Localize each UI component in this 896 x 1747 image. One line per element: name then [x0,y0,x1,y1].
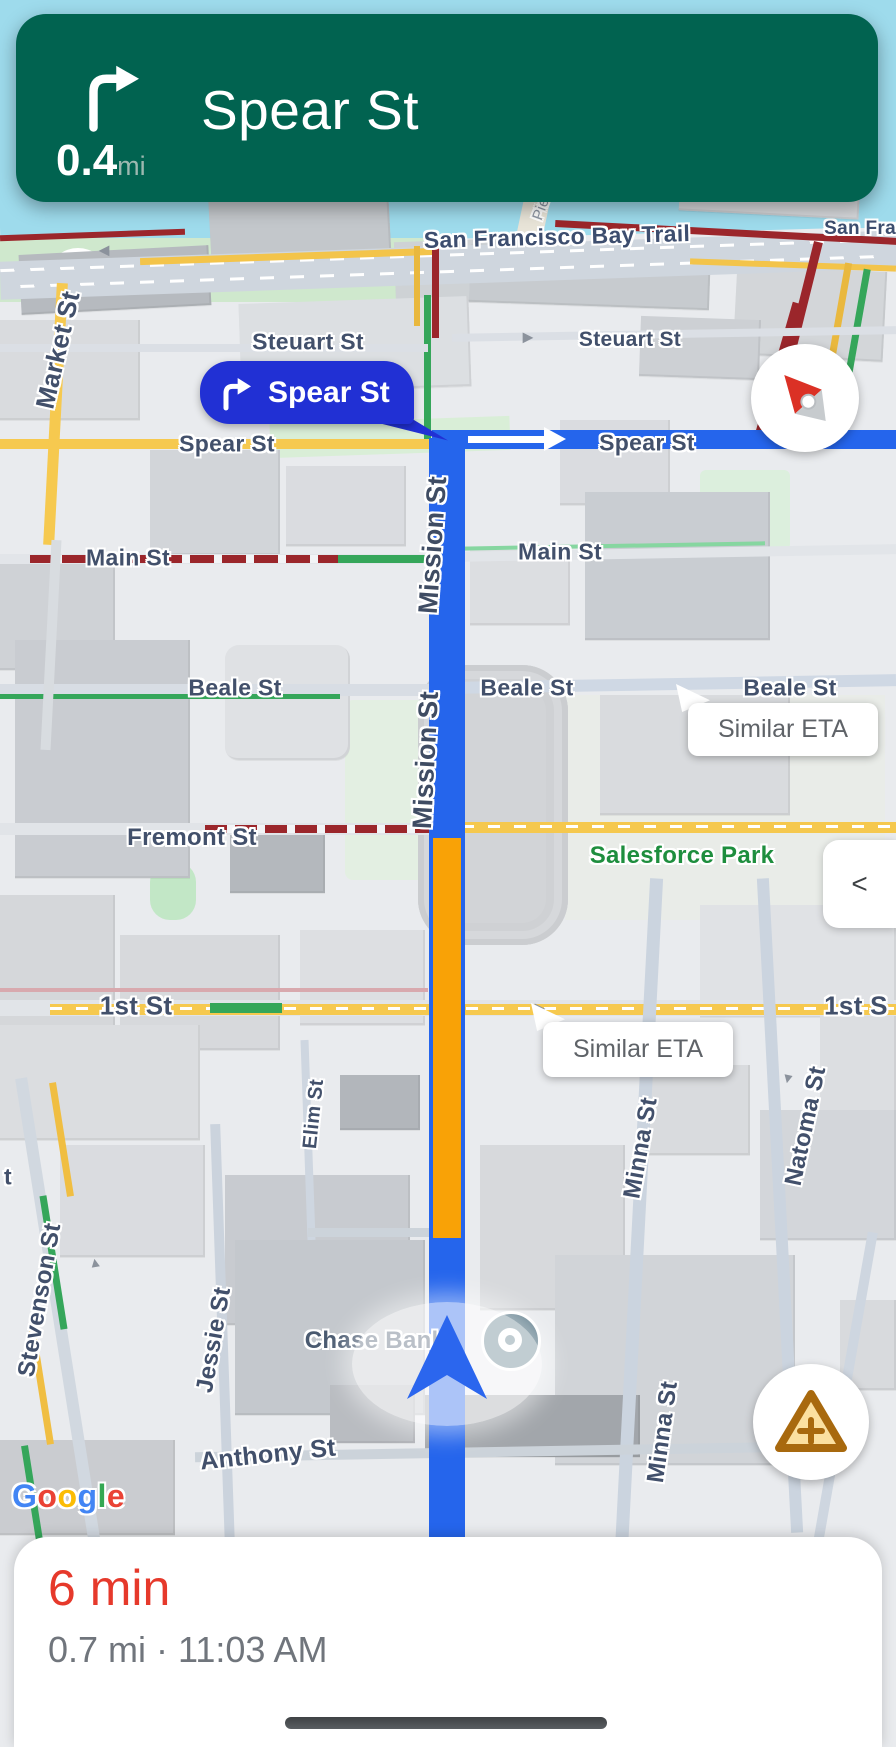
warning-triangle-add-icon [773,1386,849,1458]
street-label-spear-st-right: Spear St [599,430,695,457]
street-label-main-st-right: Main St [518,539,602,566]
map-road [414,246,420,326]
map-building [60,1145,205,1257]
map-road [210,1003,282,1013]
compass-needle-icon [756,349,855,448]
google-letter: G [12,1478,37,1514]
street-label-fremont-st: Fremont St [127,824,257,852]
alt-route-eta-bubble-2[interactable]: Similar ETA [543,1022,733,1077]
trip-distance-arrival: 0.7 mi · 11:03 AM [48,1629,327,1671]
street-label-beale-st-right: Beale St [743,675,836,702]
maneuver-distance: 0.4mi [56,136,146,186]
map-road [30,555,340,563]
street-label-anthony-st: Anthony St [199,1433,338,1476]
google-letter: l [98,1478,107,1514]
callout-street-name: Spear St [268,376,390,410]
google-logo: Google [12,1478,125,1515]
route-direction-arrow-shaft [468,436,546,443]
poi-label-salesforce-park: Salesforce Park [590,842,775,870]
navigation-screen: ◀ ▶ ▶ ▼ ▲ San Francisco Bay Trail San Fr… [0,0,896,1747]
street-label-1st-st-right: 1st S [824,991,888,1022]
alt-route-eta-bubble-1[interactable]: Similar ETA [688,703,878,756]
street-label-1st-st-left: 1st St [100,991,173,1022]
eta-bubble-text: Similar ETA [573,1035,703,1064]
collapse-panel-button[interactable]: < [823,840,896,928]
street-label-partial-t: t [4,1164,12,1191]
map-road [0,988,428,992]
map-building [340,1075,420,1130]
trip-summary-sheet[interactable]: 6 min 0.7 mi · 11:03 AM [14,1537,882,1747]
google-letter: o [57,1478,77,1514]
route-traffic-orange-segment [433,838,461,1238]
street-label-steuart-st-right: Steuart St [579,328,681,352]
road-arrow-icon: ▶ [523,329,534,346]
map-building [820,1010,896,1125]
map-building [150,450,280,555]
next-maneuver-banner[interactable]: 0.4mi Spear St [16,14,878,202]
google-letter: g [77,1478,97,1514]
road-arrow-icon: ▲ [87,1253,103,1271]
map-building [585,492,770,640]
map-road [424,295,431,447]
map-road [308,1228,446,1237]
compass-button[interactable] [751,344,859,452]
street-label-beale-st-mid: Beale St [480,675,573,702]
navigation-chevron-icon[interactable] [403,1311,491,1403]
turn-right-arrow-icon [216,373,256,413]
map-canvas[interactable]: ◀ ▶ ▶ ▼ ▲ San Francisco Bay Trail San Fr… [0,0,896,1747]
maneuver-callout[interactable]: Spear St [200,361,414,424]
route-direction-arrow-head [544,427,566,451]
map-building [225,645,350,760]
maneuver-street-name: Spear St [201,78,419,142]
street-label-steuart-st-left: Steuart St [252,329,364,356]
trip-eta: 6 min [48,1559,170,1617]
street-label-beale-st-left: Beale St [188,675,281,702]
google-letter: e [107,1478,125,1514]
street-label-spear-st-left: Spear St [179,431,275,458]
turn-right-arrow-icon [74,54,152,136]
collapse-chevron: < [851,868,867,900]
road-arrow-icon: ◀ [99,242,110,259]
map-road [462,825,896,828]
report-incident-button[interactable] [753,1364,869,1480]
drag-handle[interactable] [285,1717,607,1729]
street-label-jessie-st: Jessie St [191,1285,237,1395]
google-letter: o [37,1478,57,1514]
street-label-main-st-left: Main St [86,545,170,572]
map-building [286,466,406,546]
distance-unit: mi [117,151,146,181]
street-label-bay-trail-right: San Fran [824,218,896,240]
eta-bubble-text: Similar ETA [718,715,848,744]
road-arrow-icon: ▼ [780,1069,797,1088]
